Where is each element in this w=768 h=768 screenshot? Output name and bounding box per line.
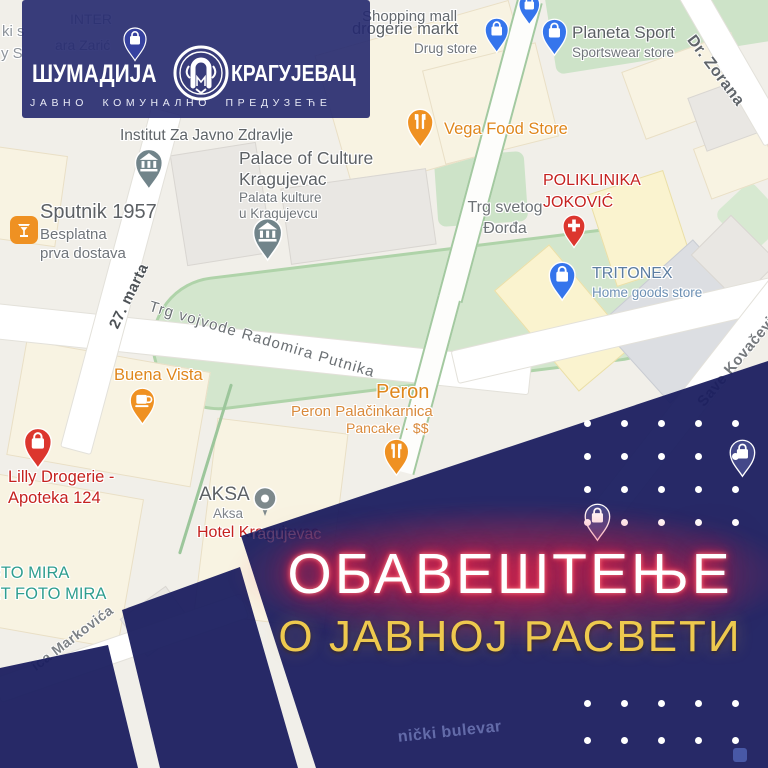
decor-dot <box>732 737 739 744</box>
decor-dot <box>621 700 628 707</box>
drogerie-markt-subtitle: Drug store <box>414 41 477 56</box>
lilly-drogerie-label: Lilly Drogerie - <box>8 468 114 487</box>
shopping-mall-pin-icon <box>517 0 542 26</box>
decor-dot <box>658 453 665 460</box>
trg-svetog-djordja-label: Đorđa <box>455 220 555 238</box>
peron-subtitle: Peron Palačinkarnica <box>291 403 433 420</box>
poliklinika-jokovic-pin-icon <box>561 213 587 249</box>
decor-dot <box>695 486 702 493</box>
decor-dot <box>584 700 591 707</box>
decor-dot <box>732 420 739 427</box>
peron-pin-icon <box>382 437 411 477</box>
decor-dot <box>732 700 739 707</box>
poliklinika-jokovic-label: POLIKLINIKA <box>543 172 641 190</box>
sputnik-1957-subtitle: prva dostava <box>40 245 126 262</box>
institut-za-javno-zdravlje-label: Institut Za Javno Zdravlje <box>120 127 293 145</box>
sputnik-1957-pin-icon <box>10 216 38 244</box>
planeta-sport-pin-icon <box>540 17 569 57</box>
trg-svetog-djordja-label: Trg svetog <box>455 199 555 217</box>
ghost-pin-icon <box>122 26 148 62</box>
decor-dot <box>695 700 702 707</box>
announcement-title: ОБАВЕШТЕЊЕ <box>260 541 760 607</box>
vega-food-store-label: Vega Food Store <box>444 120 568 139</box>
logo-text-kragujevac: КРАГУЈЕВАЦ <box>231 60 356 87</box>
decor-dot <box>584 486 591 493</box>
decor-dot <box>584 420 591 427</box>
decor-dot <box>658 737 665 744</box>
decor-dot <box>658 420 665 427</box>
aksa-label: AKSA <box>199 484 250 506</box>
tritonex-subtitle: Home goods store <box>592 285 702 300</box>
decor-dot <box>732 453 739 460</box>
decor-dot <box>695 453 702 460</box>
lilly-drogerie-pin-icon <box>22 426 54 470</box>
palace-of-culture-label: Palace of Culture <box>239 148 373 169</box>
decor-dot <box>695 737 702 744</box>
sputnik-1957-label: Sputnik 1957 <box>40 201 157 224</box>
logo-text-shumadija: ШУМАДИЈА <box>32 60 157 89</box>
shumadija-utility-emblem-icon <box>172 44 230 102</box>
planeta-sport-label: Planeta Sport <box>572 23 675 43</box>
foto-mira-label: FOTO MIRA <box>0 564 69 583</box>
decor-dot <box>658 486 665 493</box>
decor-dot <box>584 737 591 744</box>
map-fragment-frag-y-s: y S <box>1 45 23 62</box>
vega-food-store-pin-icon <box>405 107 435 149</box>
buena-vista-label: Buena Vista <box>114 366 203 385</box>
decor-dot <box>658 700 665 707</box>
decor-dot <box>621 453 628 460</box>
decor-dot <box>621 486 628 493</box>
decor-dot <box>732 486 739 493</box>
tritonex-label: TRITONEX <box>592 265 673 283</box>
buena-vista-pin-icon <box>128 386 157 426</box>
planeta-sport-subtitle: Sportswear store <box>572 45 674 60</box>
institut-za-javno-zdravlje-pin-icon <box>133 147 165 191</box>
foto-mira-label: ART FOTO MIRA <box>0 585 106 604</box>
peron-subtitle: Pancake · $$ <box>346 420 429 436</box>
decor-dot <box>584 453 591 460</box>
decor-dot <box>695 420 702 427</box>
announcement-poster: ШУМАДИЈА КРАГУЈЕВАЦ ЈАВНО КОМУНАЛНО ПРЕД… <box>0 0 768 768</box>
palace-of-culture-subtitle: Palata kulture <box>239 190 322 205</box>
peron-label: Peron <box>376 381 429 404</box>
palace-of-culture-label: Kragujevac <box>239 169 327 190</box>
ghost-map-icon <box>733 748 747 762</box>
drogerie-markt-pin-icon <box>483 16 510 54</box>
sputnik-1957-subtitle: Besplatna <box>40 226 107 243</box>
palace-of-culture-pin-icon <box>251 216 284 262</box>
announcement-subtitle: О ЈАВНОЈ РАСВЕТИ <box>260 612 760 662</box>
lilly-drogerie-label: Apoteka 124 <box>8 489 101 508</box>
tritonex-pin-icon <box>547 260 577 302</box>
decor-dot <box>621 737 628 744</box>
decor-dot <box>621 420 628 427</box>
